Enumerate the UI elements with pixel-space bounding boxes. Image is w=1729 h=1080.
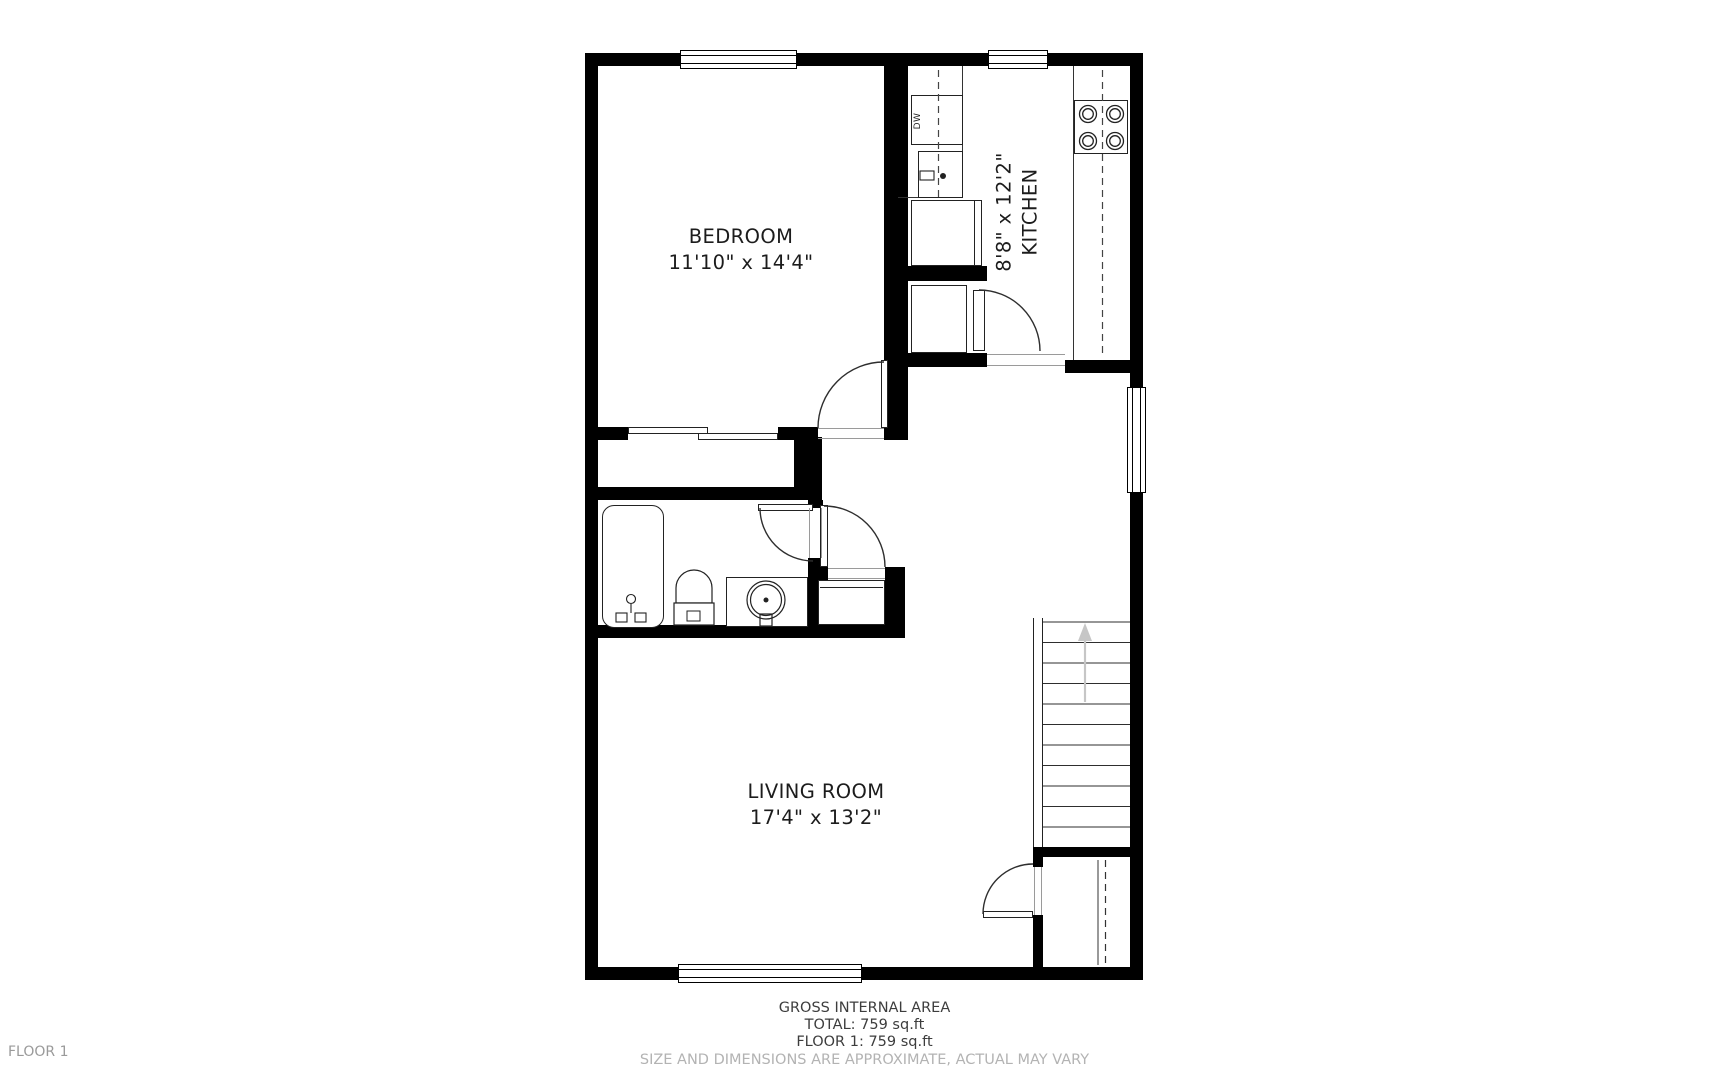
kitchen-name: KITCHEN	[1018, 152, 1044, 271]
bedroom-label: BEDROOM 11'10" x 14'4"	[591, 224, 891, 276]
floor-plan: BEDROOM 11'10" x 14'4" 8'8" x 12'2" KITC…	[0, 0, 1729, 1080]
bedroom-door-arc	[818, 362, 884, 428]
entry-closet-door-arc	[983, 864, 1033, 914]
kitchen-dimensions: 8'8" x 12'2"	[992, 152, 1018, 271]
kitchen-label: 8'8" x 12'2" KITCHEN	[958, 152, 1078, 272]
footer-floor-area: FLOOR 1: 759 sq.ft	[0, 1034, 1729, 1051]
linework-overlay	[0, 0, 1729, 1080]
footer-title: GROSS INTERNAL AREA	[0, 1000, 1729, 1017]
kitchen-door-arc	[979, 290, 1040, 351]
floor-plan-page: BEDROOM 11'10" x 14'4" 8'8" x 12'2" KITC…	[0, 0, 1729, 1080]
bedroom-name: BEDROOM	[591, 224, 891, 250]
hall-closet-door-arc	[824, 506, 885, 567]
living-room-name: LIVING ROOM	[666, 779, 966, 805]
footer: GROSS INTERNAL AREA TOTAL: 759 sq.ft FLO…	[0, 1000, 1729, 1069]
living-room-label: LIVING ROOM 17'4" x 13'2"	[666, 779, 966, 831]
footer-disclaimer: SIZE AND DIMENSIONS ARE APPROXIMATE, ACT…	[0, 1052, 1729, 1069]
stair-treads	[1043, 622, 1130, 827]
toilet	[674, 570, 714, 625]
bathroom-door-arc	[760, 508, 813, 561]
bedroom-dimensions: 11'10" x 14'4"	[591, 250, 891, 276]
living-room-dimensions: 17'4" x 13'2"	[666, 805, 966, 831]
dishwasher-label: DW	[905, 108, 931, 134]
stove-burners	[1080, 106, 1124, 150]
entry-closet-rail	[1098, 860, 1106, 965]
kitchen-sink-details	[920, 171, 946, 180]
bathtub-faucet	[616, 595, 646, 623]
footer-total-area: TOTAL: 759 sq.ft	[0, 1017, 1729, 1034]
vanity-sink	[747, 581, 785, 626]
floor-label: FLOOR 1	[8, 1044, 68, 1060]
